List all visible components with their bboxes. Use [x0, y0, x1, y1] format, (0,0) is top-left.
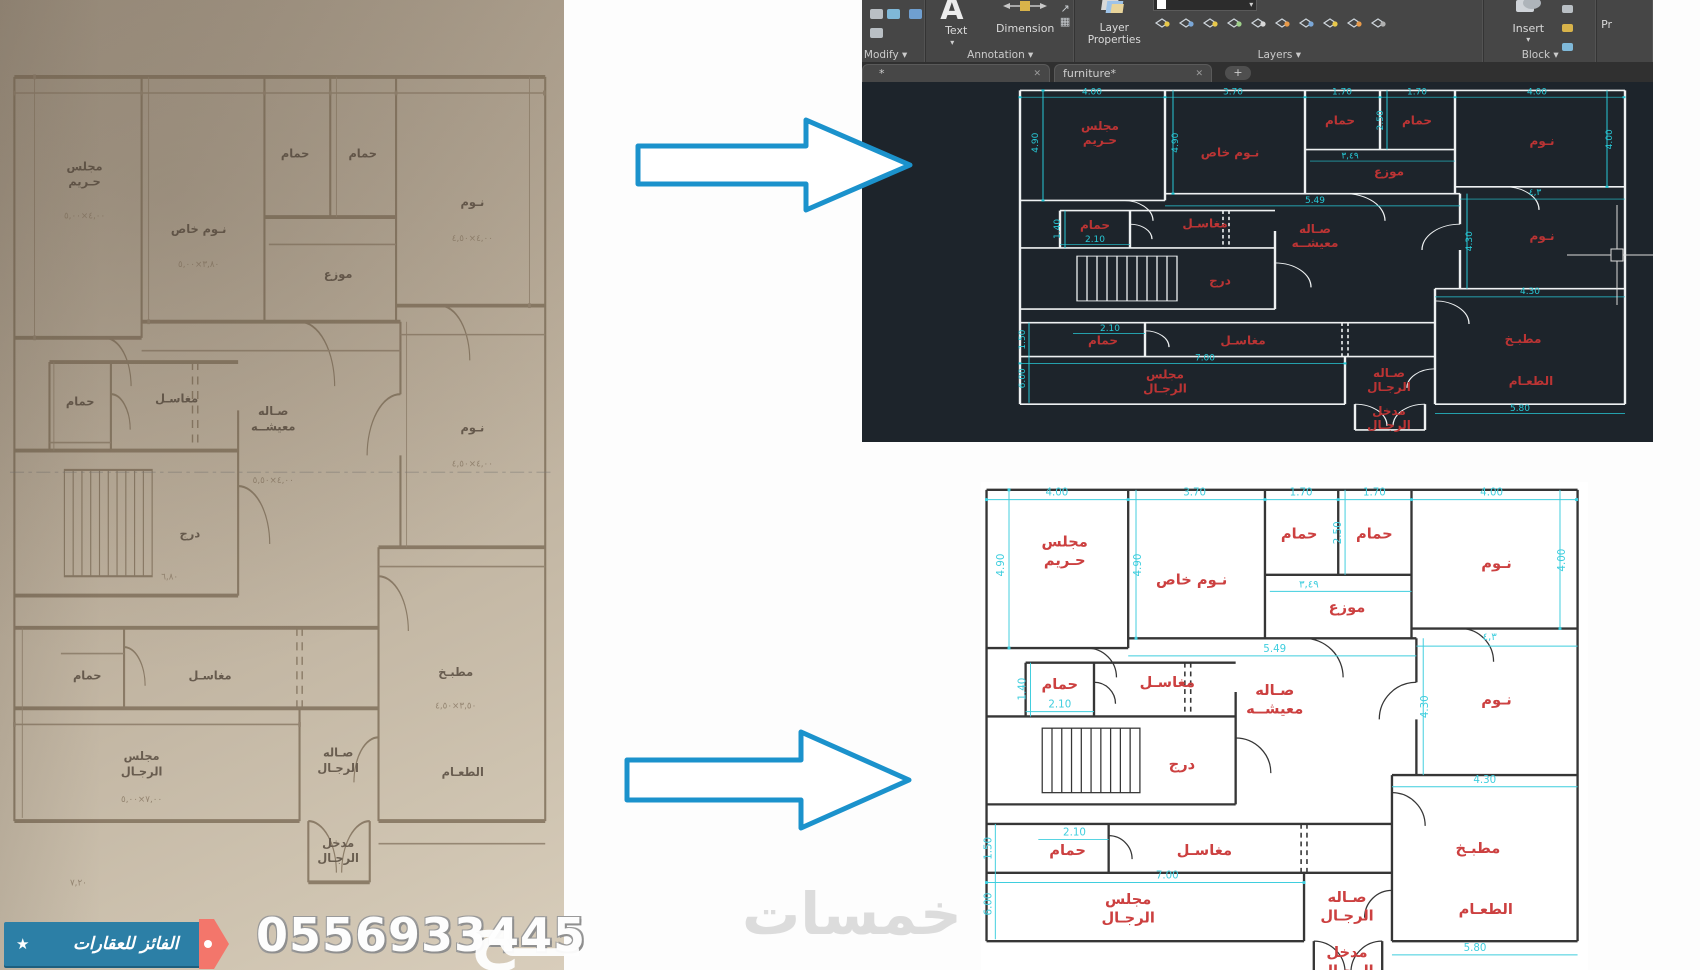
room-label: حمام	[1088, 333, 1118, 348]
offset-icon[interactable]	[870, 28, 883, 38]
ribbon-panel-properties: Pr	[1597, 0, 1653, 62]
room-label: مطبـخ	[1456, 840, 1501, 857]
ribbon: Modify ▾ A Text ▾ Dimension ↗	[862, 0, 1653, 62]
room-label: موزع	[324, 267, 353, 282]
layer-walk-icon[interactable]	[1295, 13, 1319, 29]
room-label: نـوم	[1481, 692, 1511, 709]
room-label: نـوم خاص	[1156, 572, 1227, 589]
room-label: مغاسـل	[155, 391, 198, 405]
close-icon[interactable]: ✕	[1183, 69, 1203, 79]
room-label: مجلسالرجـال	[1143, 367, 1187, 395]
room-label: صـالهمعيشــه	[251, 404, 295, 434]
layer-state-icons[interactable]	[1151, 13, 1411, 29]
dim-label: 4.90	[1132, 554, 1144, 577]
file-tab-furniture[interactable]: furniture* ✕	[1054, 64, 1212, 82]
dim-label: 1.50	[982, 837, 994, 860]
layer-thaw-icon[interactable]	[1319, 13, 1343, 29]
dim-label: ٤,٠٠×٥,٥٠	[253, 476, 294, 486]
room-label: مجلسالرجـال	[121, 749, 163, 780]
layer-color-swatch	[1157, 0, 1166, 9]
dim-label: ٣,٨٠×٥,٠٠	[178, 260, 219, 270]
caret-icon: ▾	[1502, 35, 1554, 44]
cad-floor-plan-light: مجلسحـريمنـوم خاصحمامحمامنـومموزعنـومحما…	[981, 482, 1588, 970]
dim-label: ٣,٤٩	[1299, 579, 1319, 591]
dim-label: 4.00	[1045, 487, 1068, 499]
room-label: حمام	[1080, 218, 1110, 233]
layer-dropdown[interactable]: ▾	[1153, 0, 1257, 11]
dim-label: 4.30	[1473, 774, 1496, 786]
layer-freeze-icon[interactable]	[1175, 13, 1199, 29]
dim-label: 2.50	[1376, 110, 1386, 130]
layer-unlock-icon[interactable]	[1343, 13, 1367, 29]
room-label: حمام	[66, 394, 95, 408]
text-icon: A	[940, 0, 963, 27]
dim-label: ٤,٠٠×٤,٥٠	[452, 234, 493, 244]
room-label: نـوم خاص	[1201, 145, 1259, 160]
leader-icon[interactable]: ↗	[1060, 2, 1069, 15]
dim-label: 5.49	[1305, 196, 1325, 206]
company-name: الفائز للعقارات	[41, 934, 202, 954]
dim-label: 6.00	[1018, 368, 1028, 388]
layer-properties-icon	[1101, 0, 1127, 16]
room-label: مجلسحـريم	[1042, 533, 1088, 569]
watermark-khamsat: خمسات	[742, 880, 962, 948]
dim-label: 4.00	[1480, 487, 1503, 499]
room-label: حمام	[1281, 526, 1318, 543]
room-label: مغاسـل	[189, 668, 232, 682]
room-label: مدخلالرجـال	[317, 836, 359, 867]
dim-label: ٧,٢٠	[70, 878, 87, 888]
table-icon[interactable]: ▦	[1060, 15, 1070, 28]
room-label: مجلسالرجـال	[1101, 891, 1154, 927]
dim-label: 4.90	[1171, 132, 1181, 152]
dim-label: 7.00	[1156, 870, 1179, 882]
properties-panel-label[interactable]: Pr	[1601, 18, 1612, 31]
ribbon-panel-block: Insert ▾ Block ▾	[1484, 0, 1597, 62]
dim-label: ٣,٥٠×٤,٥٠	[435, 701, 476, 711]
dimension-button[interactable]: Dimension	[982, 0, 1068, 36]
dim-label: 5.80	[1510, 404, 1530, 414]
watermark-partial-letter: ـــح	[470, 898, 578, 970]
dim-label: 1.40	[1053, 219, 1063, 239]
new-tab-button[interactable]: +	[1225, 66, 1251, 80]
dimension-icon	[1001, 0, 1049, 14]
room-label: مطبـخ	[1505, 332, 1542, 346]
file-tab-drawing[interactable]: * ✕	[862, 64, 1050, 82]
layers-panel-label[interactable]: Layers ▾	[1075, 49, 1483, 61]
edit-block-icon[interactable]	[1562, 5, 1573, 13]
room-label: مغاسـل	[1220, 333, 1265, 347]
ribbon-panel-annotation: A Text ▾ Dimension ↗ ▦ Annotation ▾	[926, 0, 1075, 62]
explode-icon[interactable]	[887, 9, 900, 19]
dim-label: 2.50	[1332, 521, 1344, 544]
room-label: حمام	[1402, 113, 1432, 128]
room-label: صـالهمعيشــه	[1292, 222, 1339, 250]
layer-match-icon[interactable]	[1271, 13, 1295, 29]
room-label: حمام	[1049, 842, 1086, 859]
fillet-icon[interactable]	[870, 9, 883, 19]
dim-label: 5.49	[1263, 643, 1286, 655]
room-label: نـوم	[1530, 229, 1555, 244]
dim-label: 4.30	[1465, 231, 1475, 251]
dim-label: 6.00	[982, 893, 994, 916]
insert-button[interactable]: Insert ▾	[1502, 0, 1554, 44]
hand-drawn-plan-photo: مجلسحـريمنـوم خاصحمامحمامنـومموزعنـومحما…	[0, 0, 564, 970]
room-label: درج	[1169, 756, 1196, 773]
layer-lock-icon[interactable]	[1199, 13, 1223, 29]
dim-label: 1.70	[1332, 88, 1352, 98]
layer-on-icon[interactable]	[1151, 13, 1175, 29]
dim-label: ٧,٠٠×٥,٠٠	[121, 795, 162, 805]
room-label: موزع	[1329, 599, 1366, 616]
room-label: حمام	[281, 146, 310, 160]
cad-floor-plan-dark: مجلسحـريمنـوم خاصحمامحمامنـومموزعنـومحما…	[1015, 85, 1635, 438]
dim-label: ٣,٤٩	[1341, 151, 1359, 161]
dim-label: 4.90	[995, 554, 1007, 577]
dim-label: ٤,٣	[1529, 188, 1542, 198]
room-label: مجلسحـريم	[67, 159, 103, 190]
dim-label: 7.00	[1195, 354, 1215, 364]
room-label: حمام	[1356, 526, 1393, 543]
dim-label: 4.00	[1082, 88, 1102, 98]
caret-icon: ▾	[950, 38, 954, 47]
dim-label: ٤,٠٠×٤,٥٠	[452, 460, 493, 470]
dim-label: 1.40	[1017, 678, 1029, 701]
room-label: نـوم	[461, 420, 485, 435]
room-label: موزع	[1374, 164, 1404, 179]
dim-label: 2.10	[1063, 827, 1086, 839]
dim-label: 1.70	[1407, 88, 1427, 98]
room-label: صـالهالرجـال	[1320, 889, 1373, 925]
modify-tools-icons[interactable]	[868, 6, 928, 44]
room-label: مغاسـل	[1182, 217, 1227, 231]
dim-label: ٤,٠٠×٥,٠٠	[64, 212, 105, 222]
caret-icon: ▾	[1249, 0, 1253, 9]
room-label: صـالهالرجـال	[1367, 366, 1411, 394]
dim-label: 4.90	[1031, 132, 1041, 152]
room-label: حمام	[73, 668, 102, 682]
layer-off-icon[interactable]	[1247, 13, 1271, 29]
ribbon-panel-layers: Layer Properties ▾ Layers ▾	[1075, 0, 1484, 62]
dim-label: 5.80	[1464, 942, 1487, 954]
room-label: حمام	[1325, 113, 1355, 128]
room-label: مغاسـل	[1177, 842, 1232, 859]
dim-label: 1.70	[1290, 487, 1313, 499]
room-label: مغاسـل	[1140, 674, 1195, 691]
arrow-top-icon	[634, 114, 916, 216]
room-label: حمام	[1042, 676, 1079, 693]
promo-collage: مجلسحـريمنـوم خاصحمامحمامنـومموزعنـومحما…	[0, 0, 1700, 970]
room-label: الطعـام	[1509, 374, 1553, 389]
room-label: الطعـام	[1459, 901, 1513, 918]
ribbon-panel-modify: Modify ▾	[862, 0, 926, 62]
room-label: صـالهمعيشــه	[1246, 682, 1303, 718]
block-attributes-icon[interactable]	[1562, 24, 1573, 32]
room-label: حمام	[348, 146, 377, 160]
file-tab-bar: * ✕ furniture* ✕ +	[862, 62, 1653, 82]
dim-label: ٦,٨٠	[161, 572, 178, 582]
modify-panel-label[interactable]: Modify ▾	[862, 49, 925, 61]
layer-merge-icon[interactable]	[1367, 13, 1391, 29]
room-label: نـوم	[1481, 555, 1511, 572]
layer-isolate-icon[interactable]	[1223, 13, 1247, 29]
hand-drawn-plan-sketch: مجلسحـريمنـوم خاصحمامحمامنـومموزعنـومحما…	[10, 64, 554, 902]
crosshair-cursor	[1567, 205, 1653, 305]
dim-label: 3.70	[1183, 487, 1206, 499]
insert-icon	[1513, 0, 1543, 16]
dim-label: 2.10	[1085, 235, 1105, 245]
dim-label: 4.00	[1605, 129, 1615, 149]
annotation-panel-label[interactable]: Annotation ▾	[926, 49, 1074, 61]
room-label: نـوم	[1530, 134, 1555, 149]
block-panel-label[interactable]: Block ▾	[1484, 49, 1596, 61]
annotation-extra-icons[interactable]: ↗ ▦	[1060, 2, 1070, 28]
company-banner: ★ الفائز للعقارات	[4, 922, 202, 966]
room-label: مدخلالرجـال	[1320, 944, 1373, 970]
dim-label: 4.00	[1527, 88, 1547, 98]
array-icon[interactable]	[909, 9, 922, 19]
room-label: مطبـخ	[438, 665, 473, 680]
dim-label: 2.10	[1100, 324, 1120, 334]
room-label: مدخلالرجـال	[1367, 404, 1411, 432]
room-label: درج	[1209, 274, 1231, 288]
autocad-canvas[interactable]: مجلسحـريمنـوم خاصحمامحمامنـومموزعنـومحما…	[862, 82, 1653, 442]
dim-label: 4.30	[1419, 695, 1431, 718]
room-label: نـوم خاص	[171, 222, 226, 237]
dim-label: 1.50	[1018, 329, 1028, 349]
dim-label: 4.30	[1520, 287, 1540, 297]
dim-label: ٤,٣	[1483, 631, 1498, 643]
room-label: الطعـام	[442, 765, 484, 779]
dim-label: 3.70	[1223, 88, 1243, 98]
autocad-window: Modify ▾ A Text ▾ Dimension ↗	[862, 0, 1653, 442]
room-label: صـالهالرجـال	[317, 745, 359, 776]
room-label: نـوم	[461, 195, 485, 210]
dim-label: 4.00	[1556, 549, 1568, 572]
layer-properties-button[interactable]: Layer Properties	[1085, 0, 1143, 46]
dim-label: 1.70	[1363, 487, 1386, 499]
room-label: مجلسحـريم	[1081, 119, 1119, 147]
star-icon: ★	[16, 935, 29, 953]
close-icon[interactable]: ✕	[1021, 69, 1041, 79]
room-label: درج	[180, 526, 201, 541]
arrow-bottom-icon	[623, 726, 915, 834]
dim-label: 2.10	[1048, 699, 1071, 711]
